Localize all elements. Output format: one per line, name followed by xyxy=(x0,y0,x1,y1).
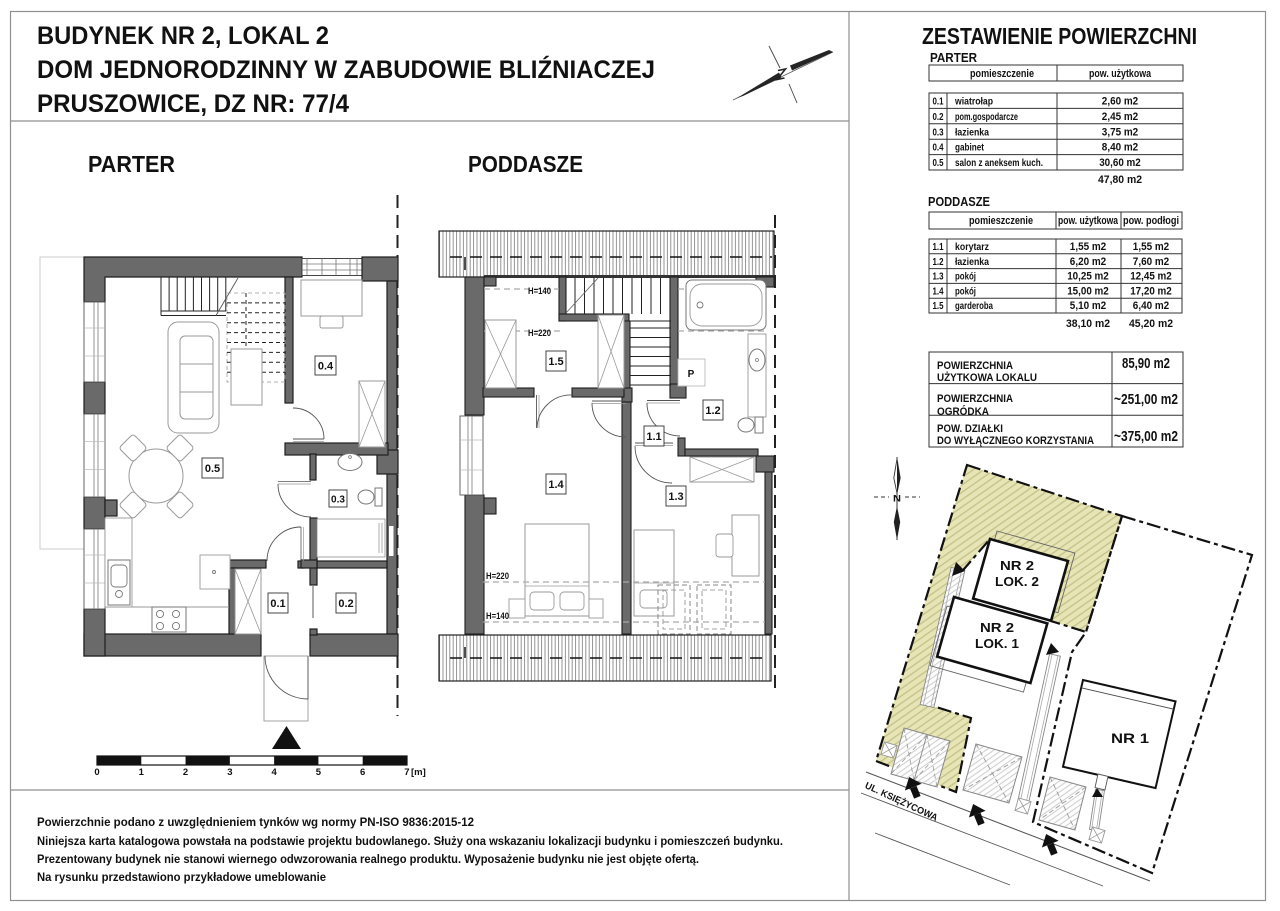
svg-text:PARTER: PARTER xyxy=(88,151,175,177)
svg-text:0.4: 0.4 xyxy=(318,361,334,373)
svg-text:POW. DZIAŁKI: POW. DZIAŁKI xyxy=(937,423,1003,435)
svg-text:H=220: H=220 xyxy=(486,571,509,581)
svg-text:1.1: 1.1 xyxy=(646,431,661,443)
svg-text:Powierzchnie podano z uwzględn: Powierzchnie podano z uwzględnieniem tyn… xyxy=(37,815,474,829)
svg-text:2,60 m2: 2,60 m2 xyxy=(1102,96,1138,108)
svg-text:10,25 m2: 10,25 m2 xyxy=(1067,271,1109,283)
svg-text:1.3: 1.3 xyxy=(933,272,944,283)
svg-text:~251,00 m2: ~251,00 m2 xyxy=(1114,391,1178,408)
svg-text:BUDYNEK NR 2, LOKAL 2: BUDYNEK NR 2, LOKAL 2 xyxy=(37,22,329,50)
svg-text:P: P xyxy=(688,369,695,380)
svg-text:1.2: 1.2 xyxy=(933,257,944,268)
svg-text:7,60 m2: 7,60 m2 xyxy=(1133,256,1169,268)
svg-text:7: 7 xyxy=(404,767,409,778)
svg-text:pow. podłogi: pow. podłogi xyxy=(1123,215,1179,227)
svg-text:gabinet: gabinet xyxy=(955,143,985,154)
svg-text:2: 2 xyxy=(183,767,188,778)
svg-text:Prezentowany budynek nie stano: Prezentowany budynek nie stanowi wierneg… xyxy=(37,852,699,866)
svg-text:salon z aneksem kuch.: salon z aneksem kuch. xyxy=(955,158,1043,169)
svg-text:6,40 m2: 6,40 m2 xyxy=(1133,300,1169,312)
svg-text:pow. użytkowa: pow. użytkowa xyxy=(1058,215,1119,227)
svg-text:pom.gospodarcze: pom.gospodarcze xyxy=(955,112,1018,123)
svg-text:pomieszczenie: pomieszczenie xyxy=(970,68,1034,80)
svg-text:0.3: 0.3 xyxy=(933,127,944,138)
svg-text:NR 1: NR 1 xyxy=(1111,730,1149,746)
svg-text:8,40 m2: 8,40 m2 xyxy=(1102,142,1138,154)
svg-text:ZESTAWIENIE POWIERZCHNI: ZESTAWIENIE POWIERZCHNI xyxy=(922,23,1197,49)
svg-text:0.1: 0.1 xyxy=(270,598,285,610)
svg-text:[m]: [m] xyxy=(411,767,426,778)
svg-text:17,20 m2: 17,20 m2 xyxy=(1130,285,1172,297)
svg-text:LOK. 1: LOK. 1 xyxy=(975,636,1019,651)
svg-text:3,75 m2: 3,75 m2 xyxy=(1102,126,1138,138)
svg-text:łazienka: łazienka xyxy=(955,127,989,138)
svg-text:NR 2: NR 2 xyxy=(980,620,1014,635)
svg-text:pokój: pokój xyxy=(955,286,976,297)
svg-text:1,55 m2: 1,55 m2 xyxy=(1070,241,1106,253)
svg-text:DOM JEDNORODZINNY W ZABUDOWIE: DOM JEDNORODZINNY W ZABUDOWIE BLIŹNIACZE… xyxy=(37,55,655,84)
svg-text:12,45 m2: 12,45 m2 xyxy=(1130,271,1172,283)
svg-text:PODDASZE: PODDASZE xyxy=(468,151,583,177)
svg-text:H=140: H=140 xyxy=(528,286,551,296)
svg-text:Niniejsza karta katalogowa pow: Niniejsza karta katalogowa powstała na p… xyxy=(37,834,783,848)
svg-text:1.4: 1.4 xyxy=(933,286,944,297)
svg-text:1.5: 1.5 xyxy=(548,356,563,368)
svg-text:5,10 m2: 5,10 m2 xyxy=(1070,300,1106,312)
svg-text:PODDASZE: PODDASZE xyxy=(928,194,990,209)
svg-text:PARTER: PARTER xyxy=(930,50,978,65)
svg-text:0.5: 0.5 xyxy=(205,463,220,475)
svg-text:3: 3 xyxy=(227,767,232,778)
svg-text:15,00 m2: 15,00 m2 xyxy=(1067,285,1109,297)
svg-text:1.2: 1.2 xyxy=(705,405,720,417)
svg-text:UL. KSIĘŻYCOWA: UL. KSIĘŻYCOWA xyxy=(863,780,939,823)
svg-text:0.1: 0.1 xyxy=(933,97,944,108)
svg-text:4: 4 xyxy=(271,767,277,778)
svg-text:1,55 m2: 1,55 m2 xyxy=(1133,241,1169,253)
svg-text:N: N xyxy=(893,494,901,504)
svg-text:NR 2: NR 2 xyxy=(1000,558,1034,573)
svg-text:korytarz: korytarz xyxy=(955,242,989,253)
svg-text:OGRÓDKA: OGRÓDKA xyxy=(937,405,989,418)
svg-text:6,20 m2: 6,20 m2 xyxy=(1070,256,1106,268)
svg-text:0: 0 xyxy=(94,767,99,778)
svg-text:0.2: 0.2 xyxy=(338,598,353,610)
svg-text:PRUSZOWICE, DZ NR: 77/4: PRUSZOWICE, DZ NR: 77/4 xyxy=(37,90,349,118)
svg-text:Na rysunku przedstawiono przyk: Na rysunku przedstawiono przykładowe ume… xyxy=(37,870,326,884)
svg-text:85,90 m2: 85,90 m2 xyxy=(1122,355,1170,372)
svg-text:UŻYTKOWA LOKALU: UŻYTKOWA LOKALU xyxy=(937,371,1037,384)
svg-text:0.3: 0.3 xyxy=(331,495,345,506)
svg-text:POWIERZCHNIA: POWIERZCHNIA xyxy=(937,360,1013,372)
svg-text:45,20 m2: 45,20 m2 xyxy=(1129,318,1173,330)
svg-text:30,60 m2: 30,60 m2 xyxy=(1099,157,1141,169)
svg-text:1: 1 xyxy=(139,767,145,778)
svg-text:0.4: 0.4 xyxy=(933,143,944,154)
svg-text:pokój: pokój xyxy=(955,272,976,283)
svg-text:38,10 m2: 38,10 m2 xyxy=(1066,318,1110,330)
svg-text:garderoba: garderoba xyxy=(955,301,993,312)
svg-text:LOK. 2: LOK. 2 xyxy=(995,574,1039,589)
svg-text:H=140: H=140 xyxy=(486,611,509,621)
svg-text:47,80 m2: 47,80 m2 xyxy=(1098,174,1142,186)
svg-text:5: 5 xyxy=(316,767,322,778)
svg-text:1.4: 1.4 xyxy=(548,479,564,491)
svg-text:DO WYŁĄCZNEGO KORZYSTANIA: DO WYŁĄCZNEGO KORZYSTANIA xyxy=(937,435,1094,447)
svg-text:1.5: 1.5 xyxy=(933,301,944,312)
svg-text:1.1: 1.1 xyxy=(933,242,944,253)
svg-text:0.2: 0.2 xyxy=(933,112,944,123)
svg-text:łazienka: łazienka xyxy=(955,257,989,268)
svg-text:POWIERZCHNIA: POWIERZCHNIA xyxy=(937,393,1013,405)
svg-text:0.5: 0.5 xyxy=(933,158,944,169)
svg-text:H=220: H=220 xyxy=(528,328,551,338)
svg-text:1.3: 1.3 xyxy=(668,491,683,503)
svg-text:pomieszczenie: pomieszczenie xyxy=(969,215,1033,227)
svg-text:6: 6 xyxy=(360,767,365,778)
svg-text:2,45 m2: 2,45 m2 xyxy=(1102,111,1138,123)
svg-text:~375,00 m2: ~375,00 m2 xyxy=(1114,428,1178,445)
svg-text:wiatrołap: wiatrołap xyxy=(954,97,993,108)
svg-text:pow. użytkowa: pow. użytkowa xyxy=(1089,68,1152,80)
